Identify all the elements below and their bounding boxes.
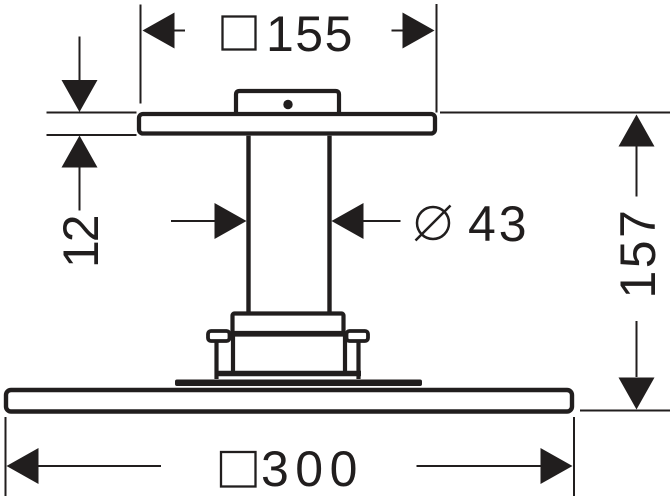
svg-text:300: 300 (261, 441, 364, 497)
svg-text:43: 43 (468, 196, 530, 252)
svg-text:155: 155 (266, 6, 354, 62)
svg-text:157: 157 (610, 208, 666, 299)
svg-text:12: 12 (53, 216, 109, 268)
